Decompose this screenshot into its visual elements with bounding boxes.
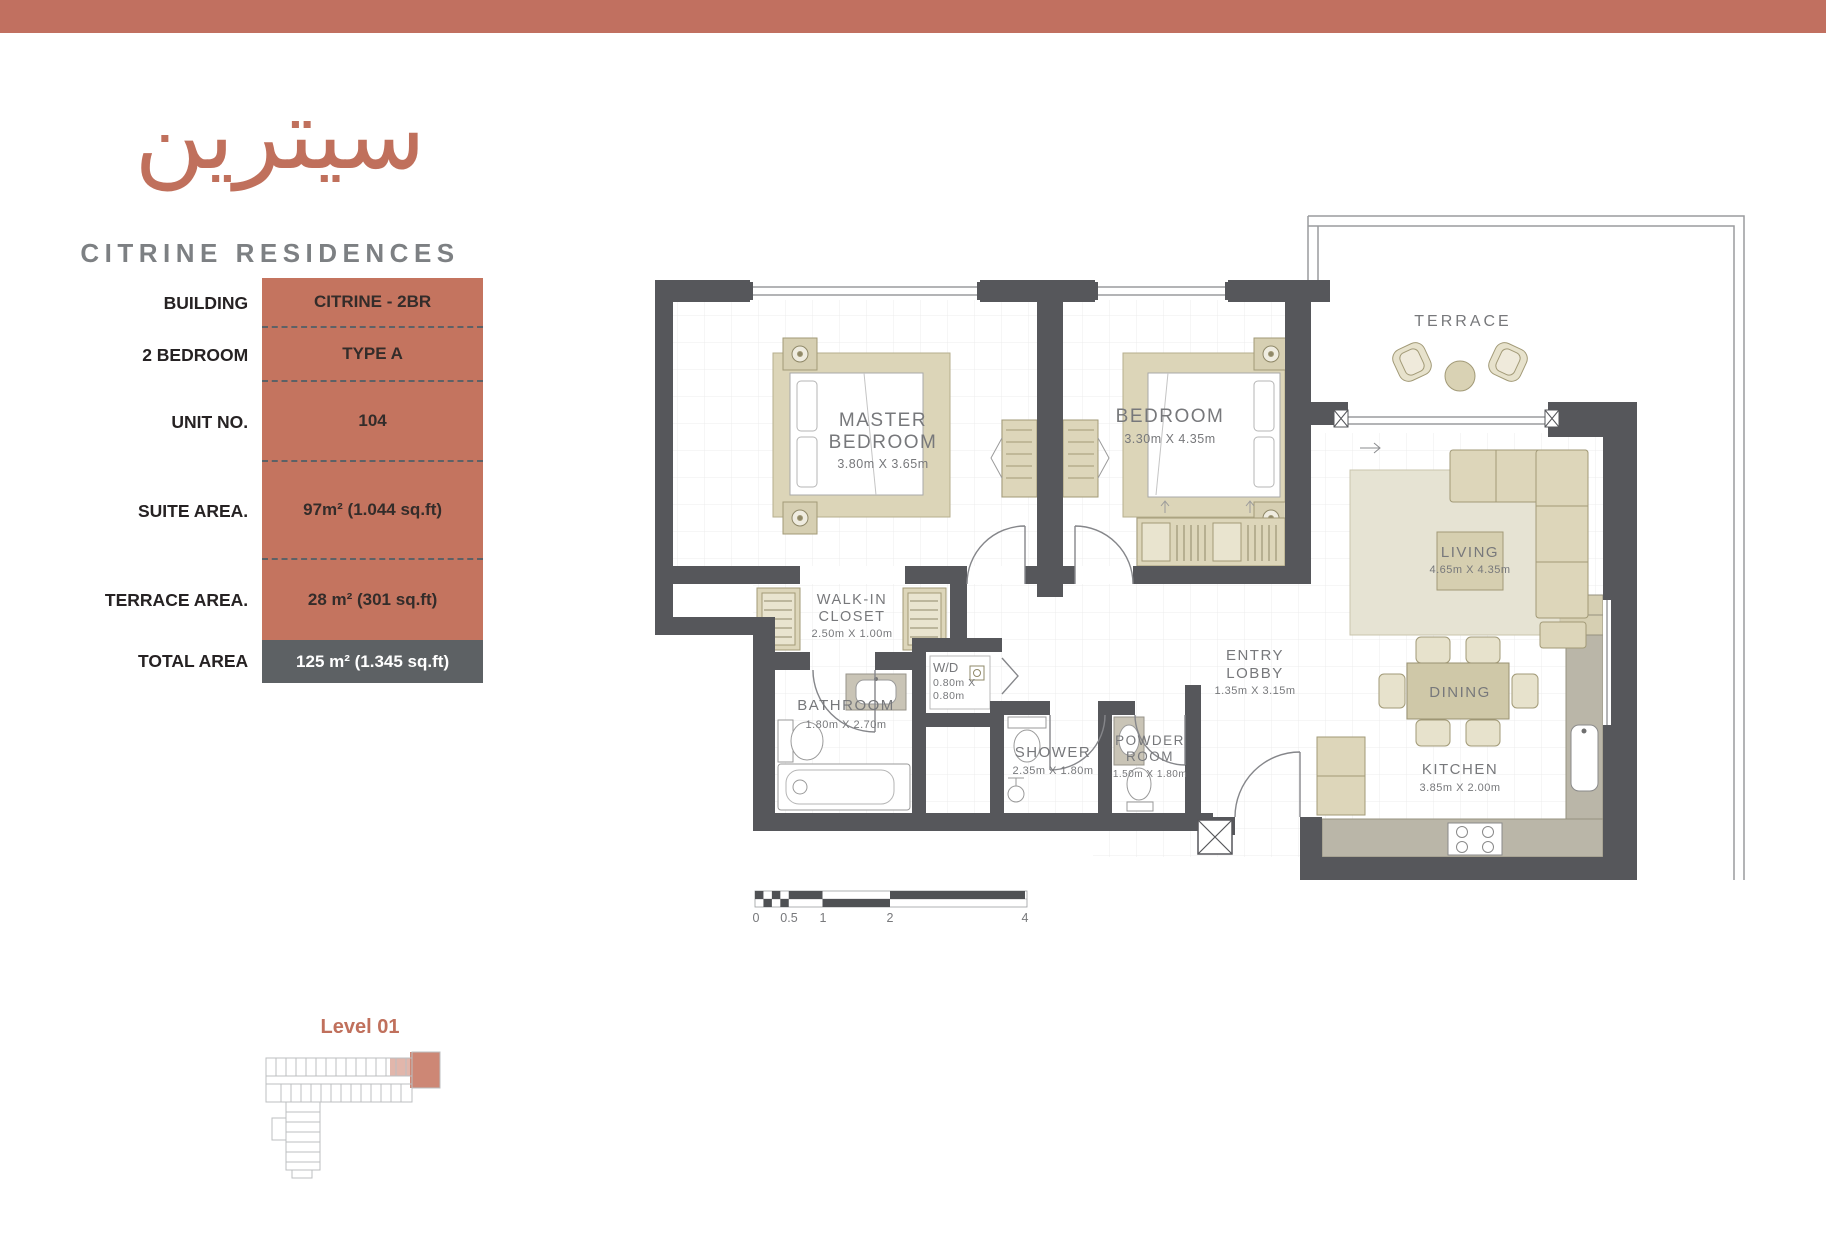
label-master-bedroom-2: BEDROOM <box>829 432 938 453</box>
scale-tick-2: 2 <box>887 911 894 925</box>
info-label: UNIT NO. <box>63 412 258 433</box>
label-dining: DINING <box>1429 684 1491 701</box>
dims-bedroom: 3.30m X 4.35m <box>1124 432 1215 446</box>
info-row-building: BUILDING CITRINE - 2BR <box>63 278 483 328</box>
key-plan-highlight <box>390 1052 440 1088</box>
info-row-unit-no: UNIT NO. 104 <box>63 382 483 462</box>
info-value: CITRINE - 2BR <box>262 278 483 328</box>
scale-bar: 0 0.5 1 2 4 <box>748 886 1048 928</box>
dims-walkin-closet: 2.50m X 1.00m <box>811 628 892 640</box>
info-row-terrace-area: TERRACE AREA. 28 m² (301 sq.ft) <box>63 560 483 640</box>
label-shower: SHOWER <box>1015 744 1092 761</box>
label-terrace: TERRACE <box>1414 313 1511 330</box>
label-entry-lobby-2: LOBBY <box>1226 665 1284 682</box>
dims-entry-lobby: 1.35m X 3.15m <box>1214 685 1295 697</box>
info-value: TYPE A <box>262 328 483 382</box>
dims-shower: 2.35m X 1.80m <box>1012 765 1093 777</box>
info-value: 28 m² (301 sq.ft) <box>262 560 483 640</box>
dims-wd-2: 0.80m <box>933 690 965 702</box>
info-label: 2 BEDROOM <box>63 345 258 366</box>
brand-name: CITRINE RESIDENCES <box>68 238 472 269</box>
header-accent-bar <box>0 0 1826 33</box>
dims-kitchen: 3.85m X 2.00m <box>1419 782 1500 794</box>
info-label: BUILDING <box>63 293 258 314</box>
info-value: 97m² (1.044 sq.ft) <box>262 462 483 560</box>
bathtub <box>778 764 910 810</box>
duct-shaft <box>1198 820 1232 854</box>
info-label: TOTAL AREA <box>63 651 258 672</box>
key-plan-svg <box>262 1048 452 1183</box>
terrace-furniture <box>1389 339 1530 391</box>
label-entry-lobby: ENTRY <box>1226 647 1284 664</box>
label-bathroom: BATHROOM <box>797 697 895 714</box>
scale-tick-1: 1 <box>820 911 827 925</box>
label-bedroom: BEDROOM <box>1116 406 1225 427</box>
level-label: Level 01 <box>255 1016 465 1039</box>
info-row-suite-area: SUITE AREA. 97m² (1.044 sq.ft) <box>63 462 483 560</box>
label-master-bedroom: MASTER <box>839 410 927 431</box>
label-kitchen: KITCHEN <box>1422 761 1498 778</box>
dims-powder-room: 1.50m X 1.80m <box>1113 769 1187 780</box>
scale-tick-0: 0 <box>753 911 760 925</box>
scale-tick-4: 4 <box>1022 911 1029 925</box>
info-row-type: 2 BEDROOM TYPE A <box>63 328 483 382</box>
label-walkin-closet-2: CLOSET <box>818 609 885 625</box>
floor-plan-svg: MASTER BEDROOM 3.80m X 3.65m BEDROOM 3.3… <box>650 180 1750 880</box>
dims-living: 4.65m X 4.35m <box>1429 564 1510 576</box>
brand-logo-arabic: سيترين <box>90 60 470 210</box>
info-label: TERRACE AREA. <box>63 590 258 611</box>
entry-cabinet <box>1317 737 1365 815</box>
label-powder-room: POWDER <box>1115 733 1185 748</box>
unit-info-table: BUILDING CITRINE - 2BR 2 BEDROOM TYPE A … <box>63 278 483 683</box>
info-value: 104 <box>262 382 483 462</box>
dims-wd: 0.80m X <box>933 677 976 689</box>
info-row-total-area: TOTAL AREA 125 m² (1.345 sq.ft) <box>63 640 483 683</box>
living-label-mat <box>1437 532 1503 590</box>
info-value: 125 m² (1.345 sq.ft) <box>262 640 483 683</box>
scale-tick-05: 0.5 <box>780 911 797 925</box>
dims-bathroom: 1.80m X 2.70m <box>805 719 886 731</box>
label-powder-room-2: ROOM <box>1126 749 1174 764</box>
label-walkin-closet: WALK-IN <box>817 592 887 608</box>
info-label: SUITE AREA. <box>63 501 258 522</box>
dims-master-bedroom: 3.80m X 3.65m <box>837 457 928 471</box>
label-wd: W/D <box>933 660 958 675</box>
label-living: LIVING <box>1441 544 1499 561</box>
